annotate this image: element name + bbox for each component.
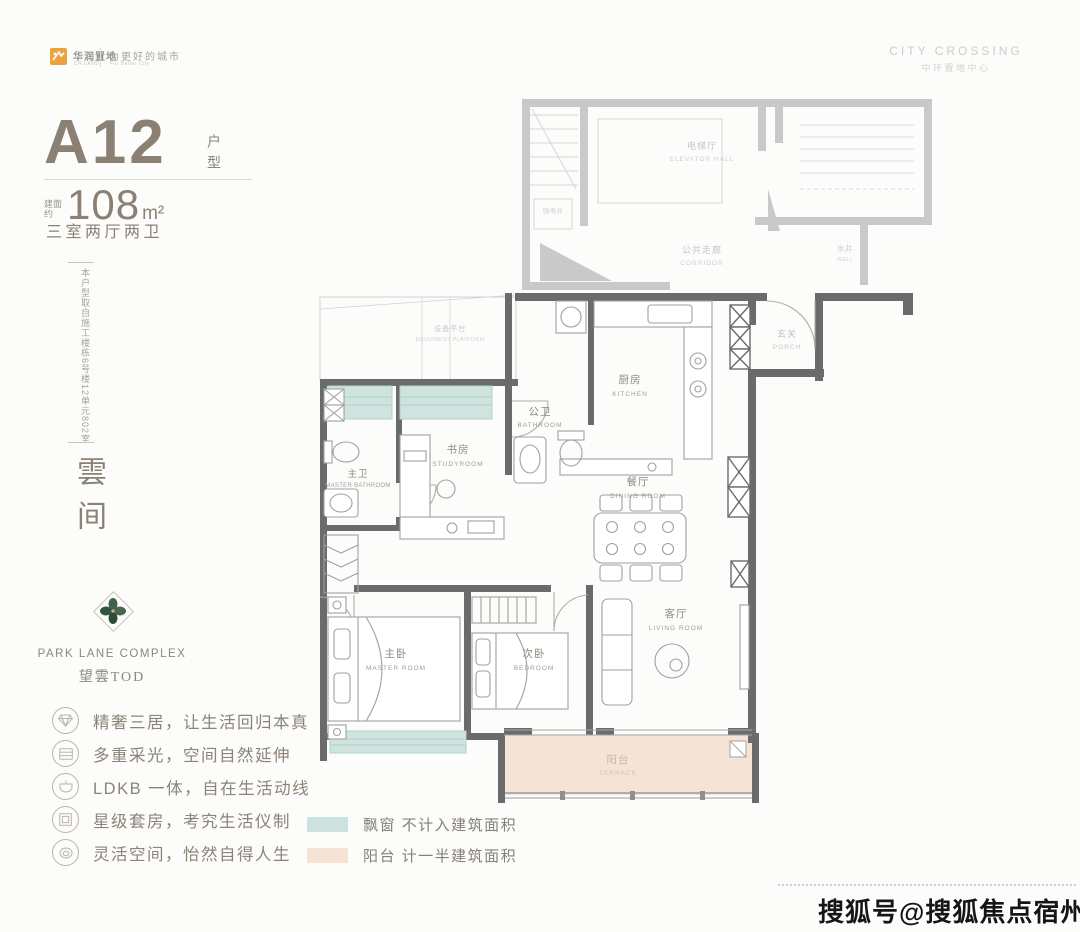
equipment-platform: 设备平台 EQUIPMENT PLATFORM [320,295,516,381]
room-label-master-bathroom-en: MASTER BATHROOM [325,483,390,489]
brand-tagline-en: For Better City [110,61,150,67]
unit-source-note: 本户型取自施工楼栋6号楼12单元802室 [79,268,92,444]
feature-item: 精奢三居，让生活回归本真 [52,708,310,733]
bay-window [330,731,466,753]
room-label-master-bathroom-cn: 主卫 [347,468,368,480]
ldk-icon [52,773,79,800]
legend-row-bay-window: 飘窗 不计入建筑面积 [307,816,517,832]
room-label-elevator-hall-cn: 电梯厅 [687,140,717,151]
suite-icon [52,806,79,833]
legend: 飘窗 不计入建筑面积 阳台 计一半建筑面积 [307,816,517,863]
brand-name-en: CR LAND [74,61,99,67]
parklane-sub: 望雲TOD [28,666,196,686]
flex-icon [52,839,79,866]
unit-code-label: 户型 [204,134,224,176]
room-label-elevator-hall-en: ELEVATOR HALL [670,156,735,163]
room-label-bathroom-en: BATHROOM [517,422,562,429]
project-name-cn: 中环置地中心 [880,61,1032,74]
room-label-terrace-en: TERRACE [599,770,637,777]
room-label-equipment-en: EQUIPMENT PLATFORM [415,337,484,343]
project-name-en: CITY CROSSING [880,44,1032,58]
room-label-living-en: LIVING ROOM [649,625,703,632]
balcony-swatch [307,848,348,863]
room-label-corridor-cn: 公共走廊 [682,244,722,255]
room-label-well-cn: 水井 [837,243,853,253]
parklane-emblem [93,591,133,631]
room-label-porch-en: PORCH [773,344,801,351]
unit-code: A12 [44,108,167,178]
room-label-living-cn: 客厅 [665,607,688,620]
feature-text: 精奢三居，让生活回归本真 [93,709,309,733]
bay-window-swatch [307,817,348,832]
feature-item: 星级套房，考究生活仪制 [52,807,310,832]
brand-logo-icon [50,48,67,65]
room-label-kitchen-cn: 厨房 [619,373,642,386]
room-label-porch-cn: 玄关 [777,328,797,339]
room-label-kitchen-en: KITCHEN [612,391,648,398]
room-label-bathroom-cn: 公卫 [529,406,552,418]
room-label-equipment-cn: 设备平台 [434,323,466,333]
project-name: CITY CROSSING 中环置地中心 [880,44,1032,74]
room-label-study-cn: 书房 [447,443,470,456]
room-label-study-en: STUDYROOM [432,461,483,468]
floorplan: 电梯厅 ELEVATOR HALL 公共走廊 CORRIDOR 水井 WELL … [300,85,950,810]
brand-logo-glyph [50,48,67,65]
bay-window [400,386,492,419]
feature-item: 多重采光，空间自然延伸 [52,741,310,766]
feature-text: 灵活空间，怡然自得人生 [93,841,291,865]
room-label-dining-en: DINING ROOM [610,493,666,500]
feature-list: 精奢三居，让生活回归本真 多重采光，空间自然延伸 LDKB 一体，自在生活动线 … [52,708,310,865]
feature-text: LDKB 一体，自在生活动线 [93,775,310,799]
brand-divider [100,48,101,67]
parklane-name: PARK LANE COMPLEX [28,648,196,660]
poster-page: 华润置地 CR LAND 为更好的城市 For Better City CITY… [0,0,1080,932]
room-label-master-room-cn: 主卧 [385,647,408,660]
daylight-icon [52,740,79,767]
feature-text: 多重采光，空间自然延伸 [93,742,291,766]
room-label-bedroom-cn: 次卧 [523,647,546,660]
room-label-well-en: WELL [837,257,853,263]
room-label-terrace-cn: 阳台 [607,753,630,766]
feature-text: 星级套房，考究生活仪制 [93,808,291,832]
series-name: 雲间 [66,456,110,544]
legend-label: 阳台 计一半建筑面积 [363,845,517,866]
public-zone: 电梯厅 ELEVATOR HALL 公共走廊 CORRIDOR 水井 WELL … [522,99,932,290]
watermark: 搜狐号@搜狐焦点宿州站 [818,892,1080,929]
room-label-dining-cn: 餐厅 [627,475,650,488]
unit-divider [44,179,252,180]
room-label-shaft-cn: 强电井 [543,206,564,215]
note-tick-top [68,262,94,263]
room-label-bedroom-en: BEDROOM [514,665,555,672]
clover-icon [93,591,133,631]
legend-label: 飘窗 不计入建筑面积 [363,814,517,835]
unit-layout: 三室两厅两卫 [46,218,163,242]
feature-item: 灵活空间，怡然自得人生 [52,840,310,865]
room-label-corridor-en: CORRIDOR [680,260,723,267]
note-tick-bottom [68,442,94,443]
gem-icon [52,707,79,734]
fineprint-line [778,884,1076,886]
feature-item: LDKB 一体，自在生活动线 [52,774,310,799]
legend-row-balcony: 阳台 计一半建筑面积 [307,847,517,863]
columns [728,305,750,587]
unit-area-prefix: 建面约 [44,199,66,219]
room-label-master-room-en: MASTER ROOM [366,665,426,672]
